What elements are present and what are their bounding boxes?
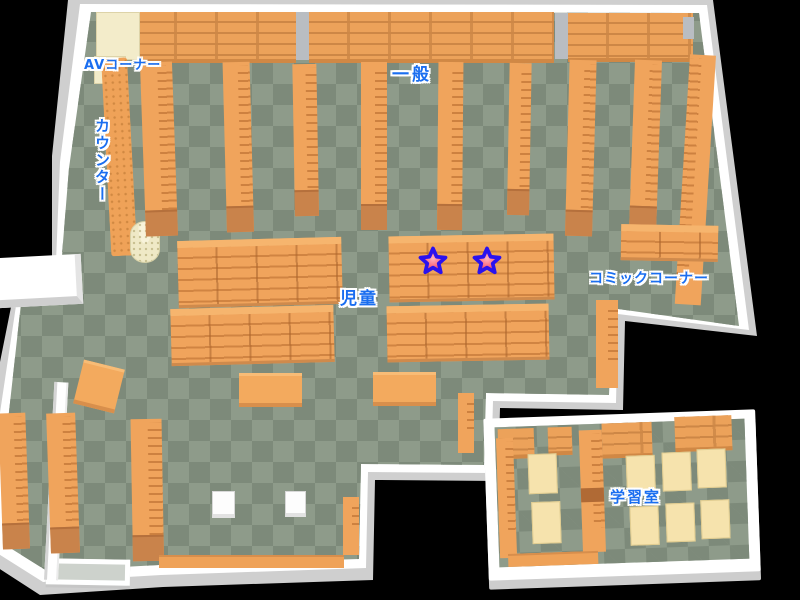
study-desk <box>629 506 659 546</box>
study-desk <box>696 448 726 488</box>
low-table <box>239 373 302 407</box>
bookshelf <box>601 422 652 459</box>
wall-bookshelf <box>343 497 359 555</box>
bookshelf <box>292 64 319 216</box>
area-label-children: 児童 <box>340 284 378 309</box>
bookshelf <box>568 13 693 62</box>
white-stand <box>212 491 235 518</box>
area-label-av-corner: AVコーナー <box>84 54 161 73</box>
bookshelf <box>361 62 387 230</box>
bookshelf <box>674 415 732 452</box>
area-label-counter: カウンター <box>92 118 113 258</box>
library-floor-map: AVコーナー 一般 カウンター 児童 コミックコーナー 学習室 <box>0 0 800 600</box>
location-star-icon <box>418 246 448 276</box>
location-star-icon <box>472 246 502 276</box>
bookshelf <box>131 419 164 562</box>
bookshelf <box>0 413 30 550</box>
childrens-bookshelf <box>387 304 550 363</box>
wall-bookshelf <box>159 555 344 568</box>
wall-pillar <box>555 13 568 59</box>
bookshelf <box>309 12 554 63</box>
bookshelf <box>437 62 463 230</box>
bookshelf <box>46 413 80 554</box>
study-desk <box>700 499 730 539</box>
study-desk <box>528 453 558 494</box>
entrance-wall-block <box>0 254 83 308</box>
bookshelf <box>548 427 573 456</box>
area-label-comic-corner: コミックコーナー <box>589 268 709 288</box>
childrens-bookshelf <box>170 305 334 366</box>
low-table <box>373 372 436 406</box>
comic-shelf <box>596 300 618 388</box>
wall-pillar <box>296 12 309 60</box>
study-desk <box>665 502 695 542</box>
area-label-general: 一般 <box>392 60 432 85</box>
white-stand <box>285 491 306 517</box>
wall-bookshelf <box>458 393 474 453</box>
bookshelf <box>140 62 178 237</box>
wall-pillar <box>683 17 694 39</box>
av-corner-desk <box>96 12 140 60</box>
childrens-bookshelf <box>177 237 343 308</box>
bookshelf <box>565 60 597 237</box>
study-desk <box>531 501 561 544</box>
wall-bookshelf <box>508 551 598 567</box>
study-desk <box>662 452 692 492</box>
area-label-study-room: 学習室 <box>610 486 661 507</box>
bookshelf <box>223 62 254 233</box>
comic-shelf <box>621 224 719 262</box>
bookshelf <box>507 63 532 215</box>
